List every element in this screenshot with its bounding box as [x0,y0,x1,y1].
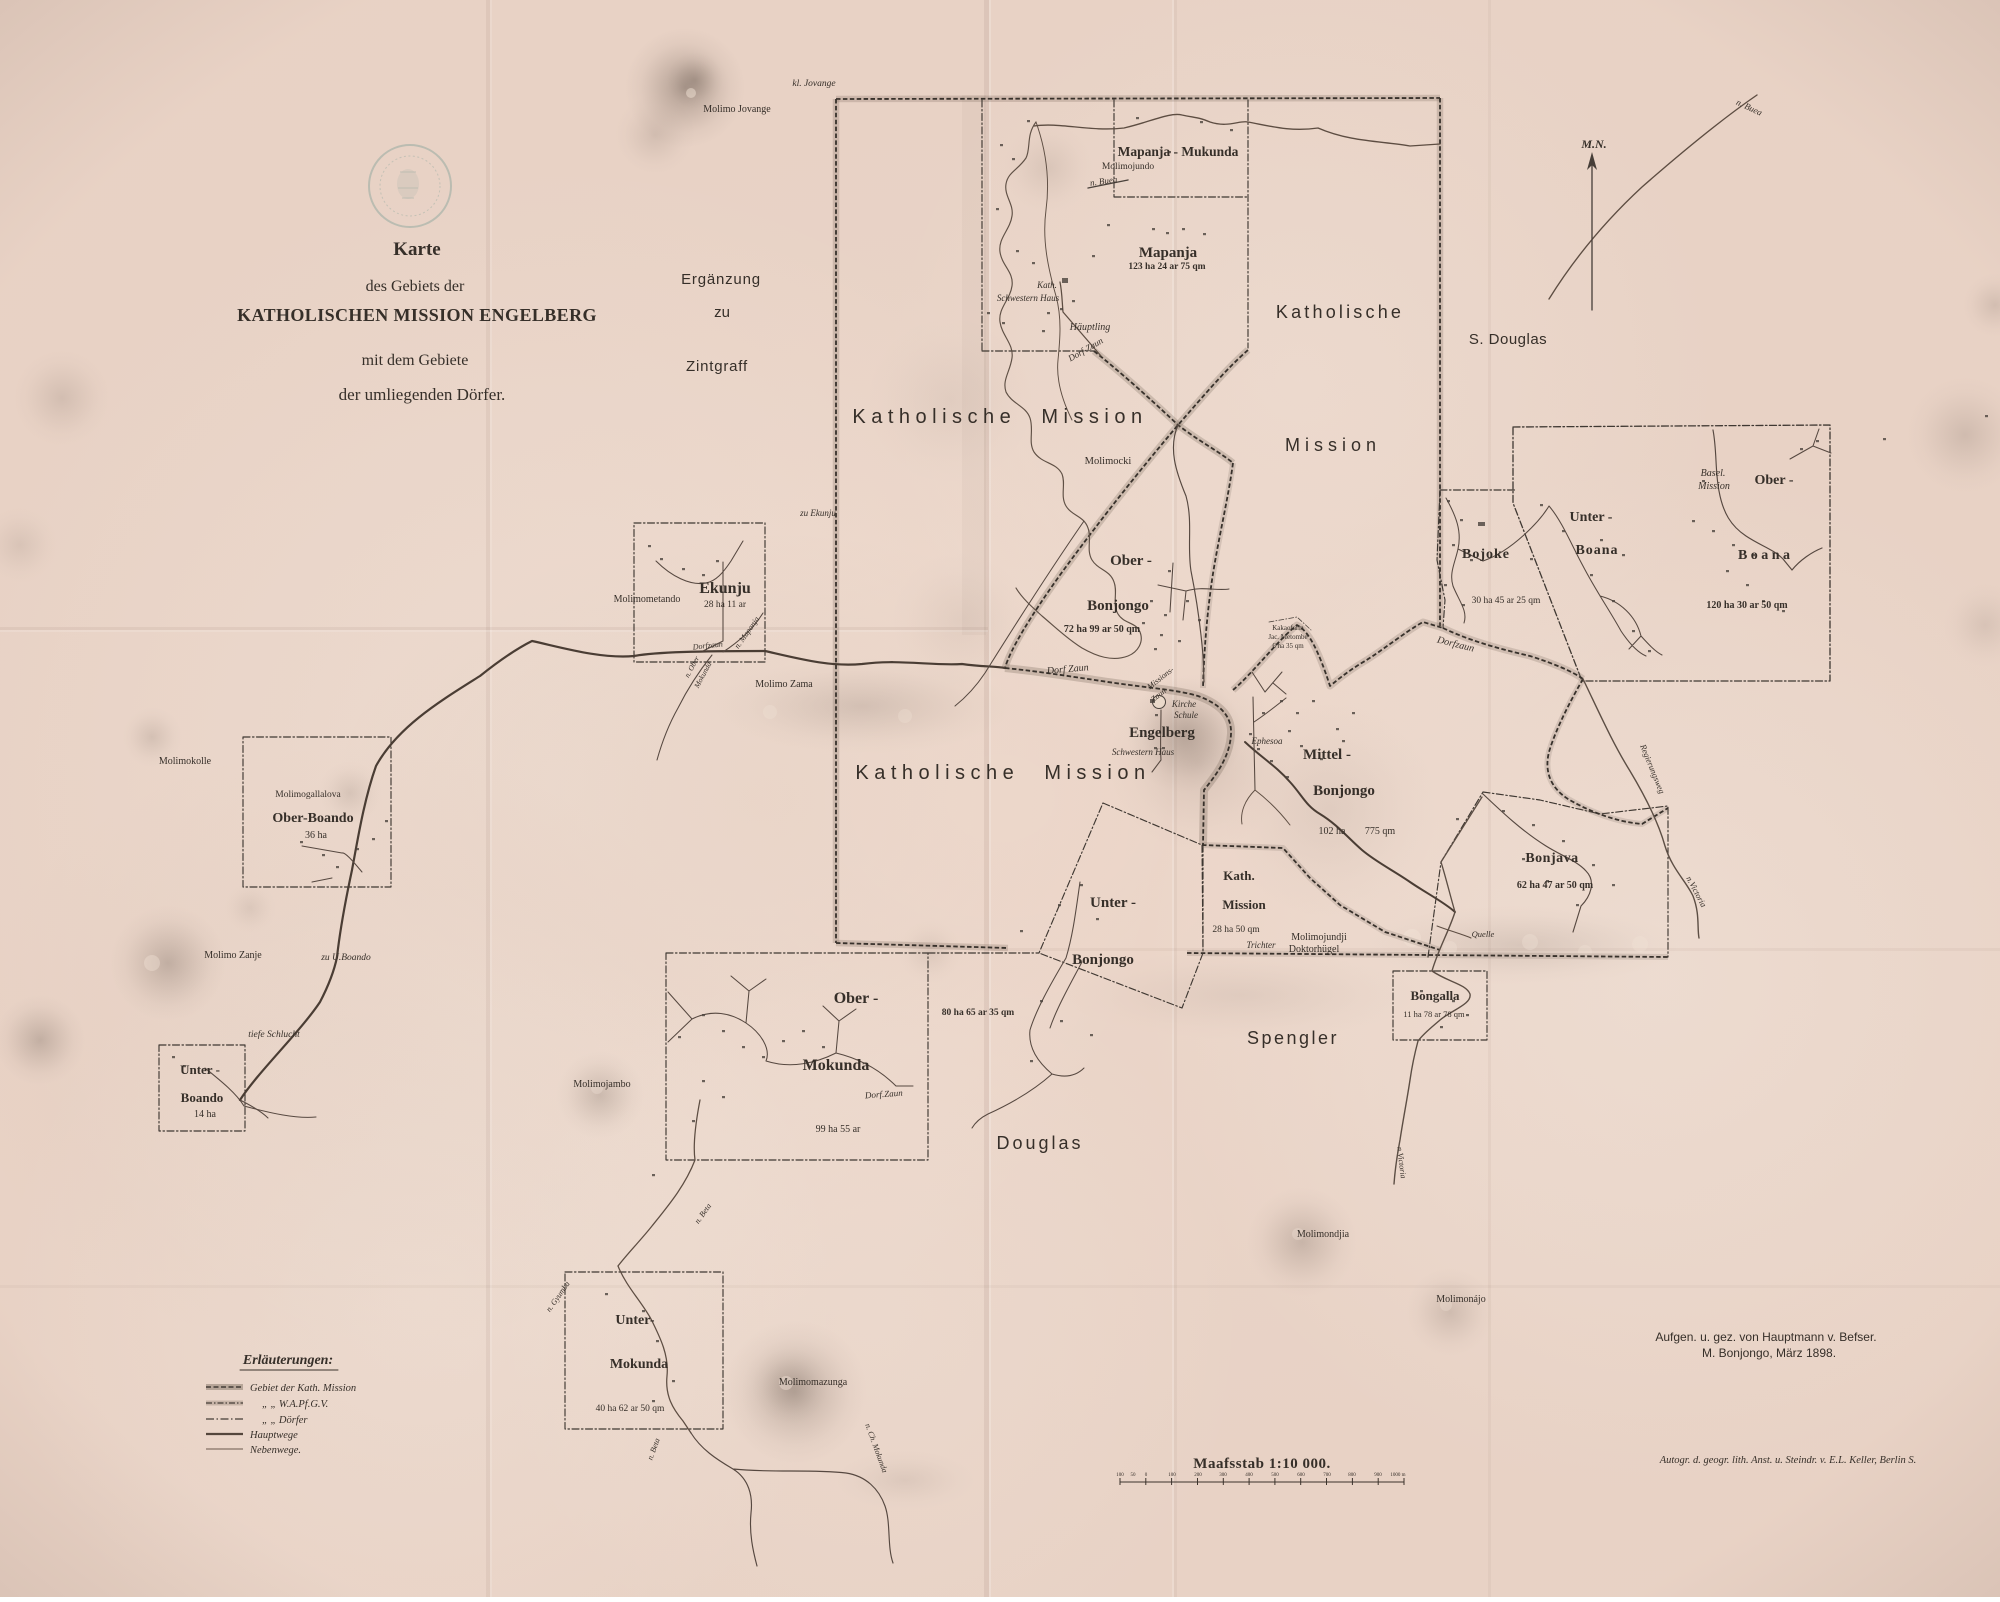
svg-text:62 ha 47 ar 50 qm: 62 ha 47 ar 50 qm [1517,880,1594,891]
svg-text:mit dem Gebiete: mit dem Gebiete [362,352,469,369]
svg-text:Bonjongo: Bonjongo [1313,783,1375,799]
svg-text:„ „ W.A.Pf.G.V.: „ „ W.A.Pf.G.V. [262,1399,329,1410]
svg-text:Mittel -: Mittel - [1303,747,1351,763]
svg-text:Molimometando: Molimometando [614,594,681,605]
svg-text:Katholische Mission: Katholische Mission [852,406,1147,428]
svg-text:KATHOLISCHEN MISSION ENGELBERG: KATHOLISCHEN MISSION ENGELBERG [237,305,597,325]
svg-text:Schule: Schule [1174,710,1198,720]
svg-text:Mapanja - Mukunda: Mapanja - Mukunda [1118,144,1239,159]
svg-text:Ergänzung: Ergänzung [681,271,761,288]
svg-text:Bonjava: Bonjava [1525,851,1578,866]
svg-text:11 ha 78 ar 78 qm: 11 ha 78 ar 78 qm [1403,1009,1465,1019]
svg-text:Ephesoa: Ephesoa [1251,736,1283,746]
svg-text:500: 500 [1271,1473,1279,1478]
svg-text:100: 100 [1168,1473,1176,1478]
svg-text:100: 100 [1116,1473,1124,1478]
svg-text:Aufgen. u. gez. von Hauptmann: Aufgen. u. gez. von Hauptmann v. Befser. [1655,1330,1876,1344]
svg-text:Erläuterungen:: Erläuterungen: [242,1353,333,1368]
svg-text:„ „ Dörfer: „ „ Dörfer [262,1415,308,1426]
svg-text:Ober -: Ober - [1110,553,1152,569]
svg-text:M.N.: M.N. [1580,137,1606,151]
svg-text:Molimonájo: Molimonájo [1436,1294,1485,1305]
svg-text:Trichter: Trichter [1246,940,1276,950]
svg-text:6 ha 35 qm: 6 ha 35 qm [1272,642,1304,650]
svg-text:Jac. Metombe: Jac. Metombe [1268,633,1307,641]
svg-text:Unter-: Unter- [615,1313,654,1328]
svg-text:Bonjongo: Bonjongo [1072,952,1134,968]
svg-text:28 ha 50 qm: 28 ha 50 qm [1212,925,1260,935]
svg-text:Kakaofarm: Kakaofarm [1272,624,1304,632]
svg-text:80 ha 65 ar 35 qm: 80 ha 65 ar 35 qm [942,1008,1014,1018]
svg-text:Bojoke: Bojoke [1462,547,1510,562]
svg-text:120 ha 30 ar 50 qm: 120 ha 30 ar 50 qm [1706,600,1788,611]
svg-text:Boana: Boana [1575,543,1618,558]
svg-text:Mission: Mission [1222,897,1266,912]
svg-text:99 ha 55 ar: 99 ha 55 ar [816,1124,861,1135]
svg-text:Zintgraff: Zintgraff [686,358,748,375]
svg-text:Molimo Zanje: Molimo Zanje [204,950,262,961]
svg-text:Molimojundji: Molimojundji [1291,932,1347,943]
svg-text:Bongalla: Bongalla [1410,988,1460,1003]
svg-text:Mission: Mission [1285,435,1381,455]
svg-text:Boando: Boando [181,1090,224,1105]
svg-text:Unter -: Unter - [1570,510,1613,525]
svg-text:Schwestern Haus: Schwestern Haus [997,293,1060,303]
svg-text:Mission: Mission [1697,481,1730,492]
svg-text:Molimocki: Molimocki [1085,456,1132,467]
svg-text:Doktorhügel: Doktorhügel [1289,944,1340,955]
svg-text:Bonjongo: Bonjongo [1087,598,1149,614]
svg-text:B o a n a: B o a n a [1738,548,1790,563]
svg-text:Katholische Mission: Katholische Mission [855,762,1150,784]
svg-text:S. Douglas: S. Douglas [1469,331,1547,348]
svg-text:72 ha 99 ar 50 qm: 72 ha 99 ar 50 qm [1064,624,1141,635]
svg-text:Mapanja: Mapanja [1139,245,1198,261]
svg-text:Molimomazunga: Molimomazunga [779,1377,848,1388]
svg-text:zu: zu [714,304,730,321]
svg-text:Häuptling: Häuptling [1069,322,1111,333]
svg-text:der umliegenden Dörfer.: der umliegenden Dörfer. [339,385,506,404]
svg-text:123 ha 24 ar 75 qm: 123 ha 24 ar 75 qm [1128,262,1205,272]
svg-text:Unter -: Unter - [180,1062,220,1077]
svg-text:Quelle: Quelle [1472,929,1495,939]
svg-text:800: 800 [1348,1473,1356,1478]
svg-text:900: 900 [1374,1473,1382,1478]
svg-text:50: 50 [1131,1473,1137,1478]
svg-text:Molimogallalova: Molimogallalova [275,790,341,800]
svg-text:300: 300 [1219,1473,1227,1478]
svg-text:102 ha: 102 ha [1319,826,1347,837]
svg-text:Molimo Zama: Molimo Zama [755,679,813,690]
svg-text:Molimondjia: Molimondjia [1297,1229,1350,1240]
svg-text:Kath.: Kath. [1223,868,1254,883]
svg-text:Ekunju: Ekunju [699,580,751,597]
svg-text:Hauptwege: Hauptwege [249,1430,298,1441]
svg-text:400: 400 [1245,1473,1253,1478]
svg-text:Molimojundo: Molimojundo [1102,162,1155,172]
svg-text:kl. Jovange: kl. Jovange [792,79,835,89]
svg-text:Katholische: Katholische [1276,302,1404,322]
svg-text:Ober -: Ober - [1754,473,1793,488]
svg-text:600: 600 [1297,1473,1305,1478]
svg-text:M. Bonjongo, März 1898.: M. Bonjongo, März 1898. [1702,1346,1836,1360]
svg-text:Basel.: Basel. [1701,468,1726,479]
svg-text:tiefe Schlucht: tiefe Schlucht [248,1029,300,1040]
svg-text:Gebiet der Kath. Mission: Gebiet der Kath. Mission [250,1383,356,1394]
svg-text:Autogr. d. geogr. lith. Anst.: Autogr. d. geogr. lith. Anst. u. Steindr… [1659,1455,1917,1466]
svg-text:700: 700 [1323,1473,1331,1478]
svg-text:200: 200 [1194,1473,1202,1478]
svg-text:Unter -: Unter - [1090,895,1136,911]
svg-text:36 ha: 36 ha [305,830,328,841]
svg-text:Kath.: Kath. [1036,280,1057,290]
svg-text:Karte: Karte [393,239,440,260]
svg-text:Douglas: Douglas [996,1133,1083,1153]
svg-text:40 ha 62 ar 50 qm: 40 ha 62 ar 50 qm [596,1404,665,1414]
svg-text:775 qm: 775 qm [1365,826,1396,837]
svg-text:30 ha 45 ar 25 qm: 30 ha 45 ar 25 qm [1472,596,1541,606]
svg-text:Molimojambo: Molimojambo [573,1079,630,1090]
svg-text:1000 m: 1000 m [1390,1473,1405,1478]
svg-text:zu Ekunju: zu Ekunju [799,508,836,518]
svg-text:Molimokolle: Molimokolle [159,756,212,767]
svg-text:Engelberg: Engelberg [1129,725,1195,741]
svg-text:Nebenwege.: Nebenwege. [249,1445,301,1456]
svg-text:28 ha 11 ar: 28 ha 11 ar [704,600,747,610]
svg-text:zu U.Boando: zu U.Boando [320,953,371,963]
svg-text:Mokunda: Mokunda [803,1057,870,1074]
svg-text:Kirche: Kirche [1171,699,1196,709]
svg-text:14 ha: 14 ha [194,1109,217,1120]
svg-text:Spengler: Spengler [1247,1028,1339,1048]
svg-text:Ober -: Ober - [834,990,879,1007]
svg-text:Schwestern Haus: Schwestern Haus [1112,747,1175,757]
svg-text:des Gebiets der: des Gebiets der [366,278,465,295]
svg-text:Mokunda: Mokunda [610,1357,668,1372]
svg-text:Molimo Jovange: Molimo Jovange [703,104,771,115]
svg-text:Ober-Boando: Ober-Boando [272,811,353,826]
svg-text:Maafsstab 1:10 000.: Maafsstab 1:10 000. [1193,1456,1330,1472]
